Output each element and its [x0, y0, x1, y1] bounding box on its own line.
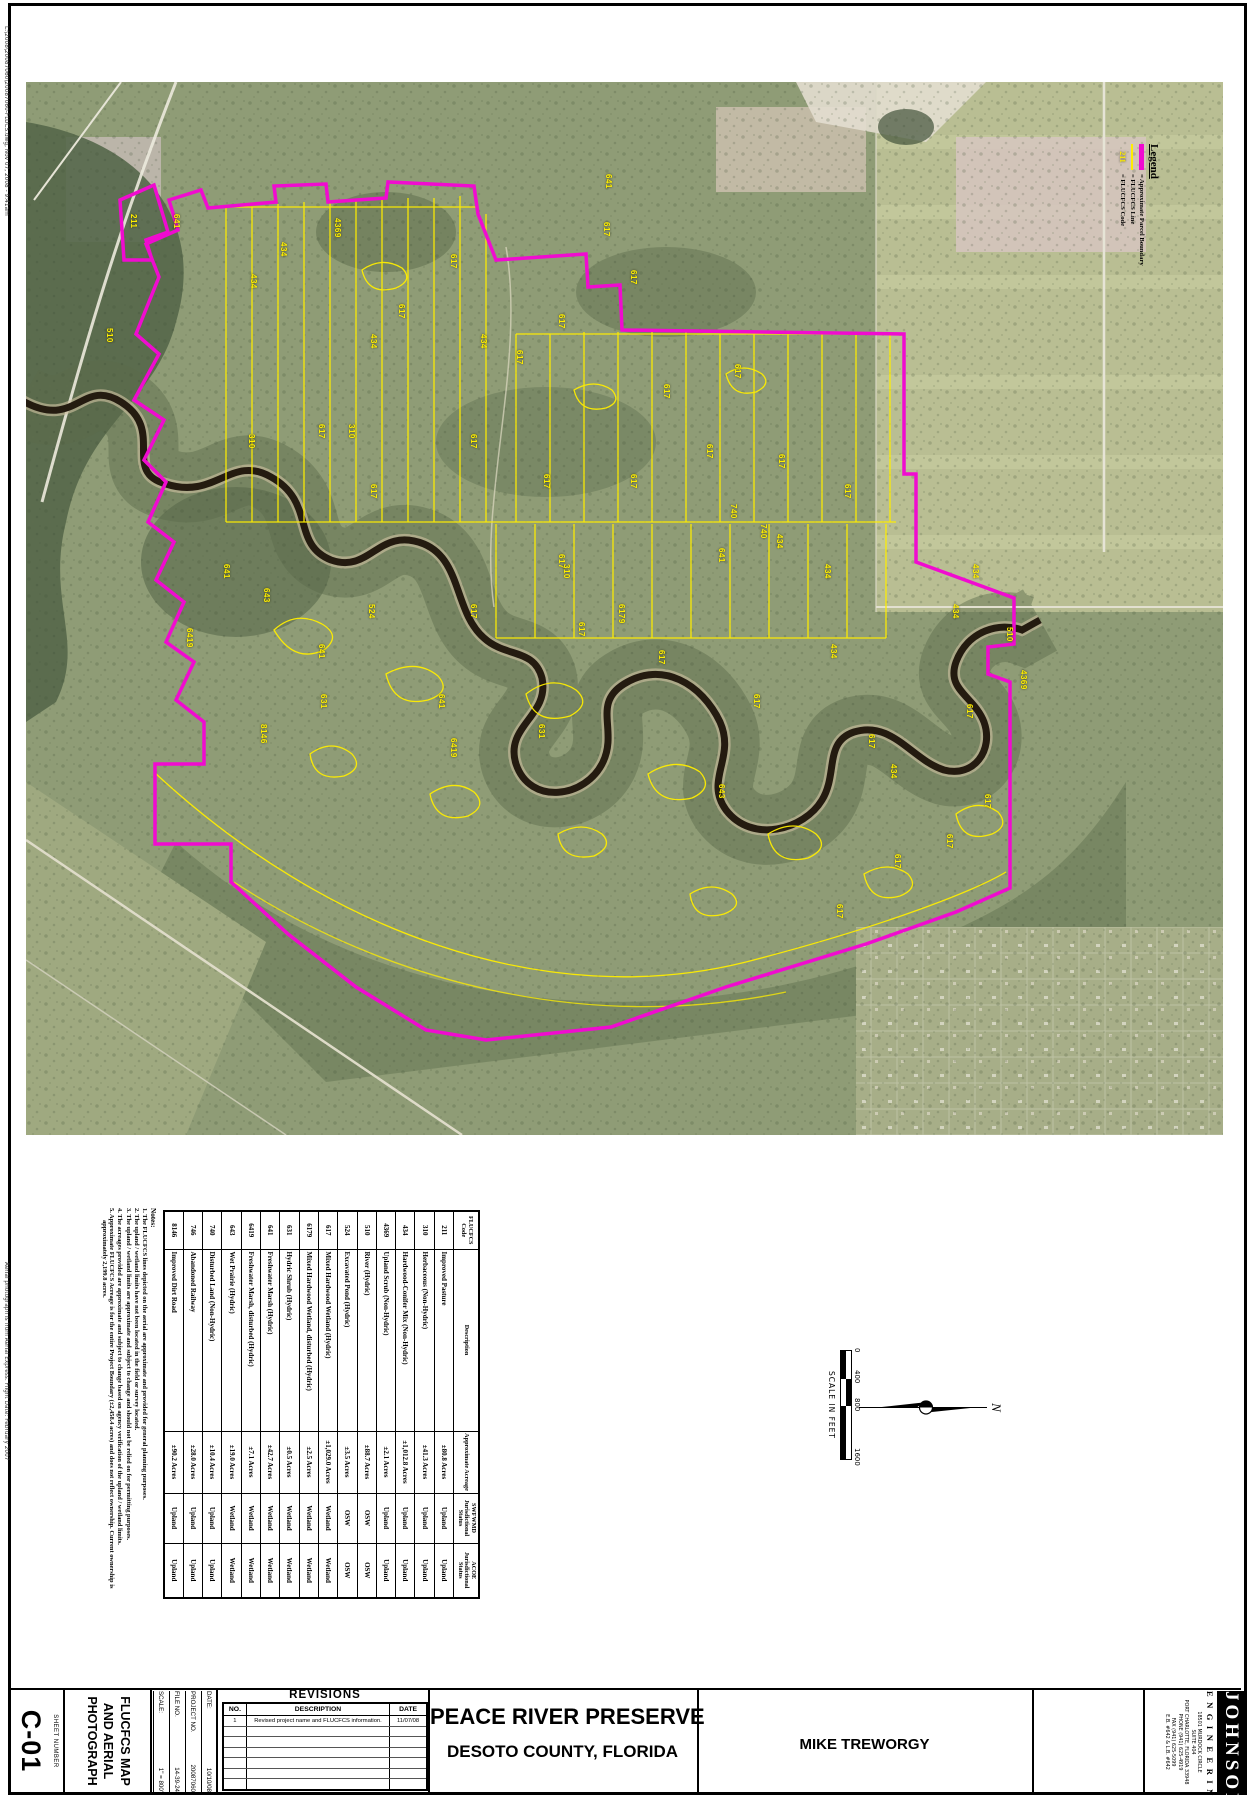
firm-name: ENGINEERING: [1205, 1691, 1215, 1793]
flucfcs-code-label: 434: [479, 334, 488, 349]
flucfcs-code-label: 617: [983, 794, 992, 809]
notes-list: 1. The FLUCFCS lines depicted on the aer…: [101, 1208, 148, 1600]
revision-row-empty: [223, 1758, 427, 1769]
flucfcs-code-label: 434: [971, 564, 980, 579]
flucfcs-code-label: 617: [662, 384, 671, 399]
flucfcs-code-label: 617: [629, 474, 638, 489]
flucfcs-code-label: 310: [562, 564, 571, 579]
flucfcs-code-label: 617: [542, 474, 551, 489]
flucfcs-code-label: 434: [823, 564, 832, 579]
project-subtitle: DESOTO COUNTY, FLORIDA: [430, 1742, 695, 1762]
project-title-cell: PEACE RIVER PRESERVE DESOTO COUNTY, FLOR…: [430, 1690, 695, 1762]
legend-item-parcel-boundary: = Approximate Parcel Boundary: [1138, 144, 1145, 342]
flucfcs-code-label: 617: [835, 904, 844, 919]
map-legend: Legend = Approximate Parcel Boundary = F…: [1092, 142, 1160, 342]
flucfcs-code-label: 310: [347, 424, 356, 439]
flucfcs-code-label: 617: [705, 444, 714, 459]
flucfcs-row: 434Hardwood-Conifer Mix (Non-Hydric)±1,0…: [396, 1211, 415, 1598]
flucfcs-code-label: 617: [577, 622, 586, 637]
parcel-boundary-swatch: [1139, 144, 1144, 170]
file-path-stamp: L:\2008\20087060\20087060-FLUCS.dwg, Nov…: [0, 26, 9, 456]
flucfcs-row: 211Improved Pasture±80.8 AcresUplandUpla…: [434, 1211, 453, 1598]
firm-address: 18501 MURDOCK CIRCLESUITE 404PORT CHARLO…: [1164, 1691, 1202, 1793]
revision-row-empty: [223, 1779, 427, 1790]
flucfcs-code-label: 4369: [1019, 670, 1028, 690]
svg-text:N: N: [989, 1402, 1004, 1413]
flucfcs-code-label: 740: [729, 504, 738, 519]
sheet-title-cell: FLUCFCS MAP AND AERIAL PHOTOGRAPH: [66, 1691, 150, 1791]
flucfcs-row: 641Freshwater Marsh (Hydric)±42.7 AcresW…: [261, 1211, 280, 1598]
firm-address-line: E.B. #642 & L.B. #642: [1164, 1691, 1170, 1793]
flucfcs-header-row: FLUCFCS Code Description Approximate Acr…: [454, 1211, 480, 1598]
col-flucfcs-code: FLUCFCS Code: [454, 1211, 480, 1249]
flucfcs-code-label: 617: [893, 854, 902, 869]
flucfcs-code-label: 641: [222, 564, 231, 579]
firm-address-line: PORT CHARLOTTE, FLORIDA 33948: [1183, 1691, 1189, 1793]
flucfcs-code-label: 434: [829, 644, 838, 659]
revisions-title: REVISIONS: [222, 1689, 428, 1701]
flucfcs-row: 310Herbaceous (Non-Hydric)±41.3 AcresUpl…: [415, 1211, 434, 1598]
flucfcs-code-label: 617: [657, 650, 666, 665]
scale-bar: 0 400 800 1600 SCALE IN FEET: [806, 1342, 861, 1472]
flucfcs-row: 746Abandoned Railway±28.0 AcresUplandUpl…: [183, 1211, 202, 1598]
col-swfwmd-status: SWFWMD Jurisdictional Status: [454, 1493, 480, 1543]
flucfcs-row: 617Mixed Hardwood Wetland (Hydric)±1,029…: [318, 1211, 337, 1598]
sheet-number: C-01: [15, 1691, 46, 1791]
flucfcs-code-label: 434: [369, 334, 378, 349]
note-item: 5. Approximate FLUCFCS Acreage is for th…: [101, 1208, 115, 1600]
field-file-no: FILE NO.14-39-24: [169, 1691, 184, 1792]
note-item: 2. The upland / wetland limits have not …: [133, 1208, 140, 1600]
revision-row-empty: [223, 1768, 427, 1779]
flucfcs-code-labels: 6412115104344344369617617641617617617434…: [26, 82, 1223, 1135]
aerial-photograph: 6412115104344344369617617641617617617434…: [26, 82, 1223, 1135]
note-item: 4. The acreages provided are approximate…: [116, 1208, 123, 1600]
revisions-block: REVISIONS NO. DESCRIPTION DATE 1Revised …: [222, 1689, 428, 1791]
field-scale: SCALE:1" = 800': [153, 1691, 168, 1792]
flucfcs-code-label: 617: [602, 222, 611, 237]
flucfcs-row: 8146Improved Dirt Road±90.2 AcresUplandU…: [164, 1211, 184, 1598]
flucfcs-code-label: 524: [367, 604, 376, 619]
flucfcs-code-label: 617: [965, 704, 974, 719]
flucfcs-row: 4369Upland Scrub (Non-Hydric)±2.1 AcresU…: [376, 1211, 395, 1598]
flucfcs-code-label: 641: [604, 174, 613, 189]
col-acreage: Approximate Acreage: [454, 1431, 480, 1493]
field-date: DATE:10/10/08: [201, 1691, 216, 1792]
flucfcs-code-label: 617: [867, 734, 876, 749]
flucfcs-code-label: 434: [279, 242, 288, 257]
flucfcs-code-label: 211: [129, 214, 138, 228]
flucfcs-code-label: 310: [247, 434, 256, 449]
flucfcs-row: 740Disturbed Land (Non-Hydric)±10.4 Acre…: [203, 1211, 222, 1598]
flucfcs-code-label: 641: [317, 644, 326, 659]
flucfcs-code-label: 617: [317, 424, 326, 439]
flucfcs-code-label: 641: [717, 548, 726, 563]
flucfcs-row: 6179Mixed Hardwood Wetland, disturbed (H…: [299, 1211, 318, 1598]
flucfcs-code-label: 617: [397, 304, 406, 319]
flucfcs-code-label: 6419: [185, 628, 194, 648]
flucfcs-code-label: 631: [537, 724, 546, 739]
revisions-table: NO. DESCRIPTION DATE 1Revised project na…: [222, 1702, 428, 1791]
flucfcs-code-label: 617: [469, 604, 478, 619]
revision-row-empty: [223, 1726, 427, 1737]
flucfcs-code-sample: 211: [1118, 144, 1127, 170]
scale-bar-graphic: [840, 1350, 852, 1460]
scale-caption: SCALE IN FEET: [827, 1342, 836, 1468]
flucfcs-code-label: 617: [369, 484, 378, 499]
flucfcs-code-label: 510: [1005, 627, 1014, 642]
note-item: 1. The FLUCFCS lines depicted on the aer…: [141, 1208, 148, 1600]
note-item: 3. The upland / wetland limits are appro…: [124, 1208, 131, 1600]
north-arrow-icon: N: [855, 1395, 1005, 1420]
flucfcs-code-label: 617: [843, 484, 852, 499]
revision-row-empty: [223, 1747, 427, 1758]
field-project-no: PROJECT NO.20087060: [185, 1691, 200, 1792]
flucfcs-code-label: 6179: [617, 604, 626, 624]
client-cell: MIKE TREWORGY: [699, 1690, 1030, 1753]
sheet-number-label: SHEET NUMBER: [52, 1691, 58, 1791]
revision-row: 1Revised project name and FLUCFCS inform…: [223, 1716, 427, 1727]
north-arrow: N: [855, 1395, 1005, 1420]
flucfcs-code-label: 617: [557, 314, 566, 329]
flucfcs-row: 6419Freshwater Marsh, disturbed (Hydric)…: [241, 1211, 260, 1598]
flucfcs-code-label: 4369: [333, 218, 342, 238]
flucfcs-code-label: 434: [951, 604, 960, 619]
firm-address-line: SUITE 404: [1189, 1691, 1195, 1793]
flucfcs-code-label: 740: [759, 524, 768, 539]
legend-title: Legend: [1148, 144, 1160, 342]
flucfcs-code-label: 8146: [259, 724, 268, 744]
firm-address-line: PHONE (941) 625-4919: [1177, 1691, 1183, 1793]
flucfcs-code-label: 617: [733, 364, 742, 379]
flucfcs-code-label: 510: [105, 328, 114, 343]
aerial-credit-stamp: Aerial photograph is from Aerial Express…: [0, 1262, 9, 1622]
flucfcs-code-label: 617: [629, 270, 638, 285]
flucfcs-code-label: 617: [777, 454, 786, 469]
flucfcs-code-label: 434: [775, 534, 784, 549]
legend-item-flucfcs-code: 211 = FLUCFCS Code: [1118, 144, 1127, 342]
flucfcs-row: 510River (Hydric)±88.7 AcresOSWOSW: [357, 1211, 376, 1598]
drawing-sheet: L:\2008\20087060\20087060-FLUCS.dwg, Nov…: [0, 0, 1255, 1800]
col-acoe-status: ACOE Jurisdictional Status: [454, 1543, 480, 1598]
flucfcs-row: 524Excavated Pond (Hydric)±3.5 AcresOSWO…: [338, 1211, 357, 1598]
flucfcs-table: FLUCFCS Code Description Approximate Acr…: [163, 1210, 480, 1599]
firm-logo: JOHNSON: [1217, 1691, 1245, 1793]
flucfcs-table-wrap: FLUCFCS Code Description Approximate Acr…: [157, 1210, 480, 1597]
flucfcs-code-label: 643: [717, 784, 726, 799]
flucfcs-code-label: 641: [172, 214, 181, 229]
flucfcs-code-label: 434: [889, 764, 898, 779]
col-description: Description: [454, 1249, 480, 1431]
flucfcs-line-swatch: [1132, 144, 1134, 170]
sheet-number-cell: SHEET NUMBER C-01: [12, 1691, 62, 1791]
notes-title: Notes:: [149, 1208, 157, 1600]
flucfcs-code-label: 643: [262, 588, 271, 603]
client-name: MIKE TREWORGY: [699, 1736, 1030, 1753]
flucfcs-code-label: 617: [515, 350, 524, 365]
legend-item-flucfcs-line: = FLUCFCS Line: [1129, 144, 1136, 342]
notes-block: Notes: 1. The FLUCFCS lines depicted on …: [81, 1208, 157, 1600]
project-title: PEACE RIVER PRESERVE: [430, 1704, 695, 1730]
revision-row-empty: [223, 1737, 427, 1748]
flucfcs-row: 643Wet Prairie (Hydric)±19.0 AcresWetlan…: [222, 1211, 241, 1598]
flucfcs-code-label: 617: [449, 254, 458, 269]
flucfcs-code-label: 631: [319, 694, 328, 709]
flucfcs-code-label: 434: [249, 274, 258, 289]
flucfcs-row: 631Hydric Shrub (Hydric)±0.5 AcresWetlan…: [280, 1211, 299, 1598]
firm-block: JOHNSON ENGINEERING 18501 MURDOCK CIRCLE…: [1145, 1691, 1245, 1793]
firm-address-line: FAX (941) 625-5099: [1170, 1691, 1176, 1793]
flucfcs-code-label: 617: [469, 434, 478, 449]
flucfcs-code-label: 617: [752, 694, 761, 709]
flucfcs-code-label: 617: [945, 834, 954, 849]
firm-address-line: 18501 MURDOCK CIRCLE: [1196, 1691, 1202, 1793]
flucfcs-code-label: 6419: [449, 738, 458, 758]
flucfcs-code-label: 641: [437, 694, 446, 709]
